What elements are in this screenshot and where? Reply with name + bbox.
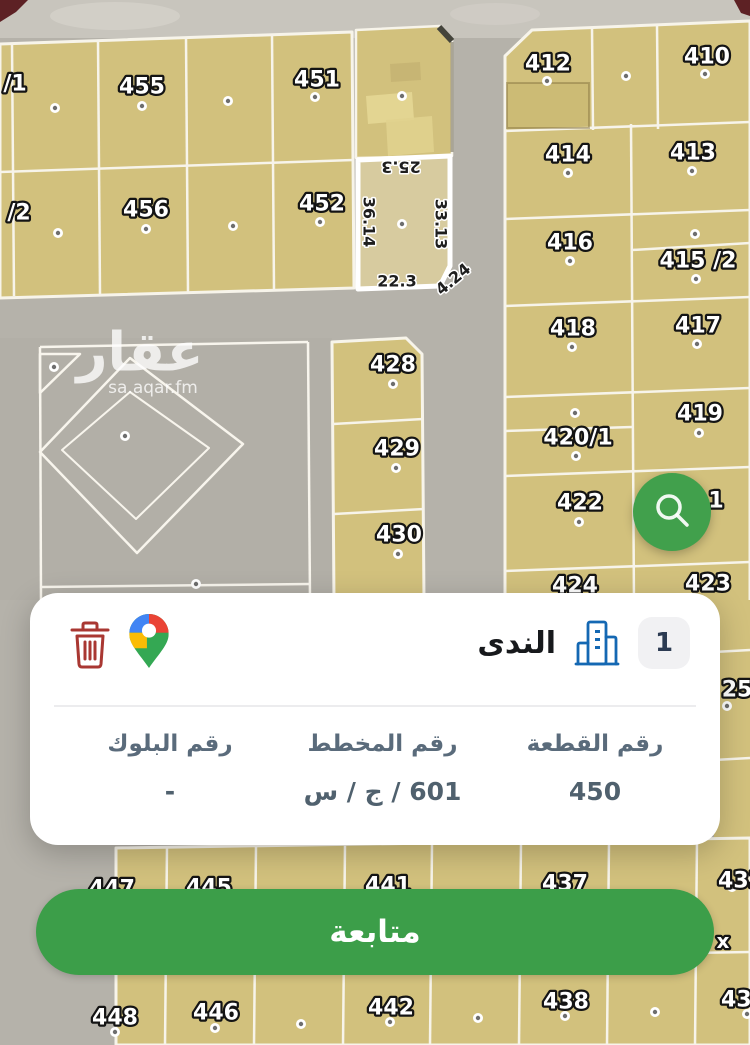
- dimension-label: 36.14: [360, 197, 379, 248]
- count-badge: 1: [638, 617, 690, 669]
- parcel-number-label[interactable]: 410: [684, 45, 730, 70]
- continue-button[interactable]: متابعة: [36, 889, 714, 975]
- map-shape: [386, 116, 434, 156]
- parcel-number-label[interactable]: 422: [557, 491, 603, 516]
- parcel-number-label[interactable]: 413: [670, 141, 716, 166]
- field-label: رقم القطعة: [500, 731, 690, 757]
- aqar-watermark-url: sa.aqar.fm: [108, 378, 198, 398]
- search-icon: [633, 473, 711, 551]
- parcel-number-label[interactable]: 446: [193, 1001, 239, 1026]
- parcel-number-label[interactable]: 438: [543, 990, 589, 1015]
- parcel-dot-center: [703, 72, 707, 76]
- parcel-dot-center: [123, 434, 127, 438]
- aqar-map-screen: عقارsa.aqar.fm25.336.1433.1322.34.24/145…: [0, 0, 750, 1045]
- map-line: [592, 28, 593, 130]
- trash-icon: [68, 619, 112, 671]
- dimension-label: 33.13: [432, 199, 451, 250]
- map-line: [657, 25, 658, 129]
- parcel-fields: رقم القطعة 450 رقم المخطط 601 / ج / س رق…: [30, 731, 720, 806]
- field-value: 601 / ج / س: [288, 777, 478, 806]
- search-fab[interactable]: [633, 473, 711, 551]
- parcel-dot-center: [231, 224, 235, 228]
- parcel-dot-center: [693, 232, 697, 236]
- parcel-number-label[interactable]: /1: [3, 72, 26, 97]
- parcel-number-label[interactable]: 418: [550, 317, 596, 342]
- field-value: 450: [500, 777, 690, 806]
- field-value: -: [75, 777, 265, 806]
- district-name: الندى: [477, 626, 556, 661]
- parcel-dot-center: [694, 277, 698, 281]
- parcel-number-label[interactable]: 412: [525, 52, 571, 77]
- parcel-dot-center: [577, 520, 581, 524]
- map-shape: [390, 62, 421, 82]
- parcel-number-label[interactable]: x: [717, 929, 730, 953]
- parcel-number-label[interactable]: /2: [7, 201, 30, 226]
- parcel-dot-center: [400, 222, 404, 226]
- parcel-dot-center: [140, 104, 144, 108]
- parcel-dot-center: [573, 411, 577, 415]
- parcel-dot-center: [318, 220, 322, 224]
- parcel-dot-center: [213, 1026, 217, 1030]
- google-maps-pin-icon: [128, 613, 170, 669]
- parcel-dot-center: [53, 106, 57, 110]
- parcel-number-label[interactable]: 451: [294, 68, 340, 93]
- district-title-group: الندى 1: [477, 615, 690, 671]
- parcel-dot-center: [695, 342, 699, 346]
- field-block-number: رقم البلوك -: [75, 731, 265, 806]
- parcel-dot-center: [624, 74, 628, 78]
- parcel-dot-center: [574, 454, 578, 458]
- parcel-dot-center: [194, 582, 198, 586]
- card-header: الندى 1: [30, 593, 720, 705]
- parcel-number-label[interactable]: 415 /2: [660, 249, 737, 274]
- parcel-dot-center: [396, 552, 400, 556]
- parcel-dot-center: [570, 345, 574, 349]
- parcel-dot-center: [545, 79, 549, 83]
- parcel-dot-center: [400, 94, 404, 98]
- parcel-number-label[interactable]: 433: [718, 869, 750, 894]
- parcel-dot-center: [476, 1016, 480, 1020]
- parcel-dot-center: [394, 466, 398, 470]
- google-maps-button[interactable]: [128, 613, 170, 669]
- dimension-label: 22.3: [377, 272, 416, 291]
- field-label: رقم البلوك: [75, 731, 265, 757]
- parcel-dot-center: [56, 231, 60, 235]
- delete-button[interactable]: [68, 619, 112, 671]
- parcel-number-label[interactable]: 442: [368, 996, 414, 1021]
- parcel-number-label[interactable]: 25: [722, 678, 750, 703]
- parcel-number-label[interactable]: 428: [370, 353, 416, 378]
- parcel-dot-center: [725, 704, 729, 708]
- parcel-dot-center: [226, 99, 230, 103]
- parcel-dot-center: [299, 1022, 303, 1026]
- map-shape: [507, 83, 589, 128]
- field-label: رقم المخطط: [288, 731, 478, 757]
- parcel-dot-center: [391, 382, 395, 386]
- parcel-number-label[interactable]: 414: [545, 143, 591, 168]
- aqar-watermark-logo: عقار: [73, 321, 203, 384]
- dimension-label: 25.3: [381, 158, 420, 177]
- parcel-number-label[interactable]: 420/1: [543, 426, 612, 451]
- parcel-info-card: الندى 1 رقم القطعة: [30, 593, 720, 845]
- map-shape: [450, 3, 540, 25]
- parcel-dot-center: [653, 1010, 657, 1014]
- card-divider: [54, 705, 696, 707]
- parcel-dot-center: [144, 227, 148, 231]
- parcel-number-label[interactable]: 448: [92, 1006, 138, 1031]
- parcel-number-label[interactable]: 455: [119, 75, 165, 100]
- parcel-number-label[interactable]: 430: [376, 523, 422, 548]
- parcel-dot-center: [313, 95, 317, 99]
- parcel-number-label[interactable]: 456: [123, 198, 169, 223]
- parcel-number-label[interactable]: 452: [299, 192, 345, 217]
- parcel-dot-center: [697, 431, 701, 435]
- field-plan-number: رقم المخطط 601 / ج / س: [288, 731, 478, 806]
- parcel-dot-center: [690, 169, 694, 173]
- parcel-dot-center: [568, 259, 572, 263]
- parcel-number-label[interactable]: 416: [547, 231, 593, 256]
- parcel-number-label[interactable]: 429: [374, 437, 420, 462]
- field-plot-number: رقم القطعة 450: [500, 731, 690, 806]
- parcel-number-label[interactable]: 434: [721, 988, 750, 1013]
- parcel-number-label[interactable]: 419: [677, 402, 723, 427]
- map-shape: [50, 2, 180, 30]
- parcel-dot-center: [52, 365, 56, 369]
- parcel-dot-center: [566, 171, 570, 175]
- building-icon: [574, 619, 620, 667]
- parcel-number-label[interactable]: 417: [675, 314, 721, 339]
